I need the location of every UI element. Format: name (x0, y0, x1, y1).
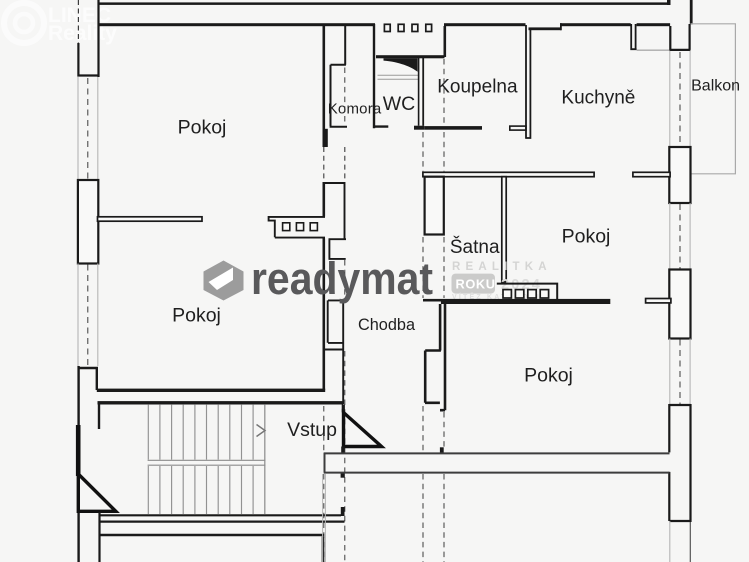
svg-text:Vstup: Vstup (287, 419, 337, 441)
svg-text:Koupelna: Koupelna (437, 77, 518, 98)
svg-text:Balkon: Balkon (691, 78, 740, 95)
svg-text:REALITKA: REALITKA (452, 261, 552, 273)
svg-text:Pokoj: Pokoj (178, 117, 227, 139)
svg-text:Šatna: Šatna (450, 236, 500, 258)
svg-text:Pokoj: Pokoj (562, 226, 611, 248)
svg-text:WC: WC (383, 93, 416, 115)
svg-text:Pokoj: Pokoj (172, 305, 221, 327)
svg-text:Pokoj: Pokoj (524, 365, 573, 387)
svg-text:Chodba: Chodba (358, 316, 416, 334)
svg-text:Kuchyně: Kuchyně (561, 87, 635, 108)
svg-text:readymat: readymat (251, 253, 433, 304)
svg-text:ROKU: ROKU (456, 276, 496, 291)
